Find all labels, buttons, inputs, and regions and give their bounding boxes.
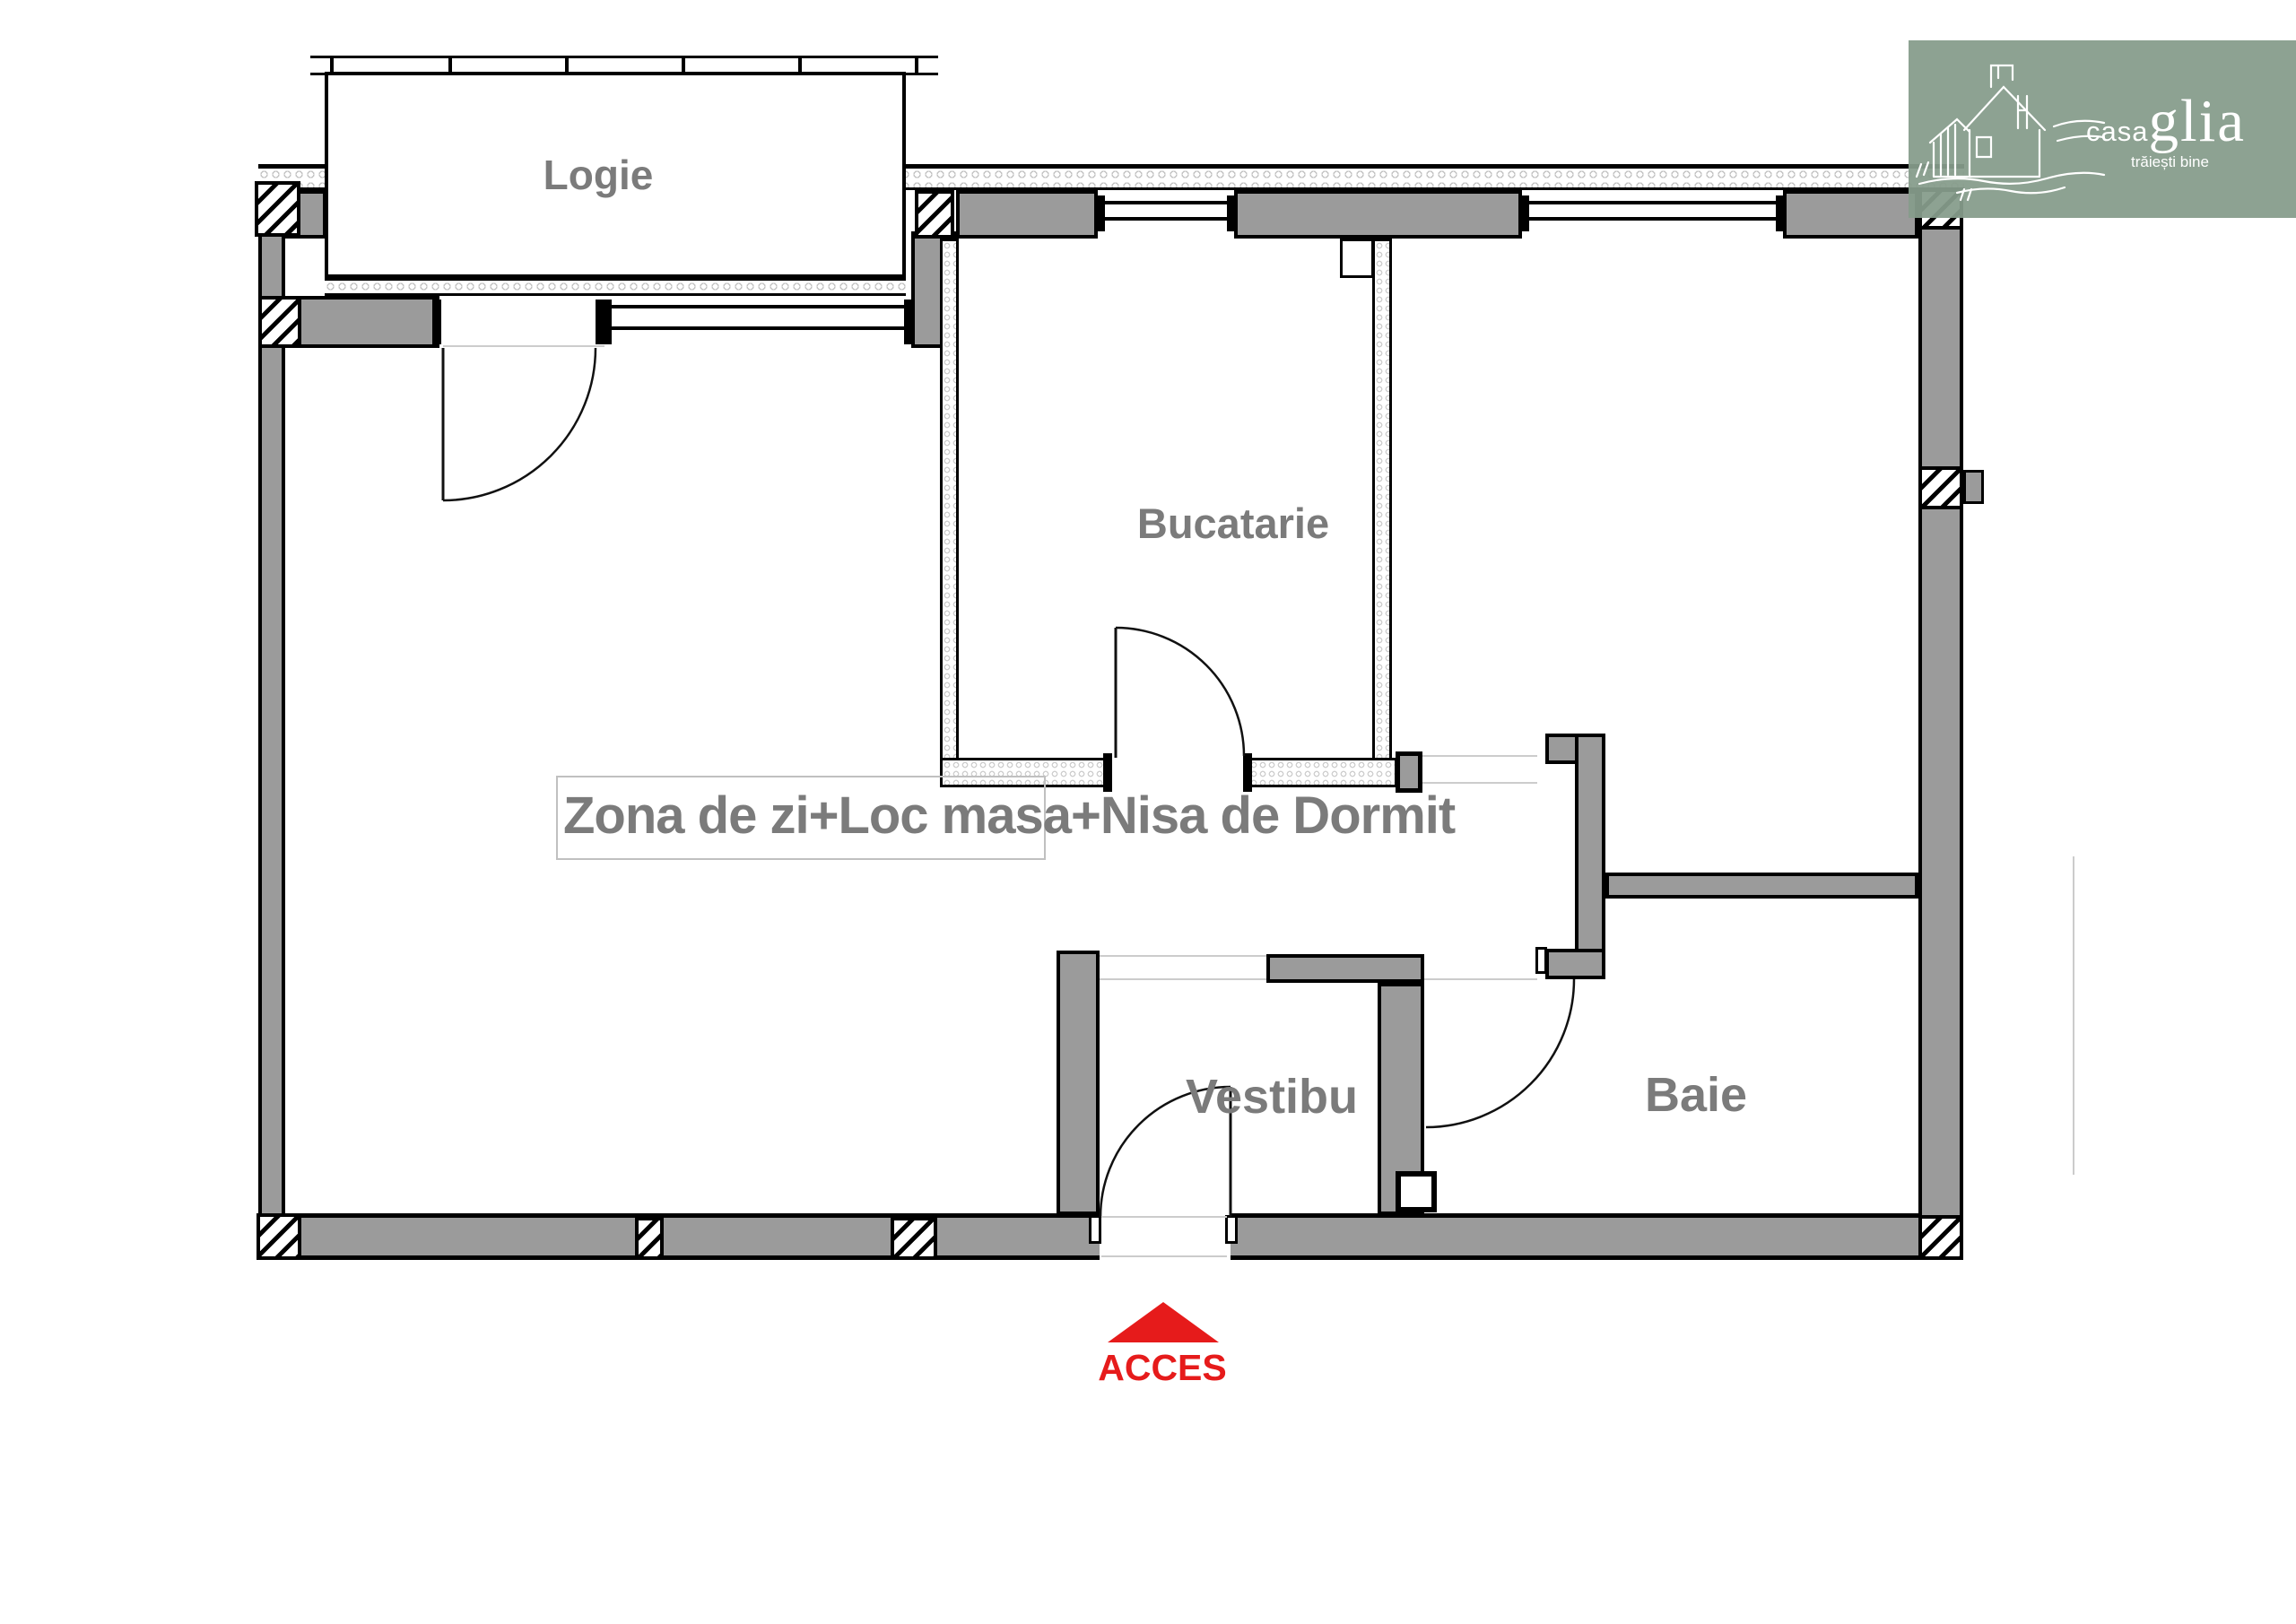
window-jamb xyxy=(1522,195,1529,231)
column xyxy=(1918,1215,1963,1260)
room-label-living: Zona de zi+Loc masa+Nisa de Dormit xyxy=(563,786,1455,846)
room-label-baie: Baie xyxy=(1517,1067,1875,1123)
door-jamb xyxy=(596,300,604,344)
kitchen-door-arc xyxy=(1116,628,1244,756)
entry-door-jamb xyxy=(1225,1215,1238,1244)
bath-pier-bottom-flange xyxy=(1545,949,1605,979)
column xyxy=(891,1217,937,1260)
floor-plan: Logie Bucatarie Zona de zi+Loc masa+Nisa… xyxy=(0,0,2296,1624)
room-label-vestibul: Vestibu xyxy=(1092,1069,1451,1125)
brand-casa: casa xyxy=(2086,116,2148,147)
vestibule-top-wall xyxy=(1266,954,1424,983)
window-jamb xyxy=(904,300,911,344)
partition-end-cap xyxy=(1340,239,1374,278)
column xyxy=(1918,466,1963,509)
column xyxy=(257,1213,301,1260)
niche-window xyxy=(1522,201,1783,221)
railing-post xyxy=(915,56,918,75)
window-jamb xyxy=(1098,195,1105,231)
brand-glia: glia xyxy=(2148,88,2245,154)
kitchen-window xyxy=(1098,201,1234,221)
brand-name: casaglia xyxy=(2086,87,2246,156)
top-wall-segment xyxy=(1234,190,1522,239)
kitchen-partition-bottom xyxy=(1247,758,1397,787)
access-arrow-icon xyxy=(1108,1302,1219,1342)
room-label-logie: Logie xyxy=(509,151,688,199)
top-wall-segment xyxy=(956,190,1098,239)
access-label: ACCES xyxy=(1028,1347,1297,1389)
loggia-insulation xyxy=(325,278,906,296)
column xyxy=(255,181,300,237)
loggia-window xyxy=(604,305,911,330)
room-label-bucatarie: Bucatarie xyxy=(1054,499,1413,548)
step-detail xyxy=(1396,1171,1437,1212)
column xyxy=(258,296,301,348)
house-sketch-icon xyxy=(1912,40,2109,218)
bottom-wall-segment xyxy=(258,1213,1100,1260)
top-wall-segment xyxy=(1783,190,1918,239)
right-wall-stub xyxy=(1963,470,1984,504)
column xyxy=(915,190,954,239)
loggia-wall-segment xyxy=(285,296,439,348)
bathroom-top-wall xyxy=(1605,873,1918,899)
right-wall xyxy=(1918,188,1963,1218)
entry-door-jamb xyxy=(1089,1215,1101,1244)
column xyxy=(635,1217,664,1260)
brand-tagline: trăiești bine xyxy=(2131,153,2209,171)
door-jamb xyxy=(1535,947,1547,974)
balcony-door-arc xyxy=(443,348,596,500)
window-jamb xyxy=(1776,195,1783,231)
kitchen-partition-left xyxy=(940,239,959,787)
window-jamb xyxy=(604,300,612,344)
bath-pier-stem xyxy=(1575,734,1605,979)
brand-logo: casaglia trăiești bine xyxy=(1909,40,2296,218)
door-jamb xyxy=(432,300,441,344)
bottom-wall-segment xyxy=(1231,1213,1918,1260)
window-jamb xyxy=(1227,195,1234,231)
